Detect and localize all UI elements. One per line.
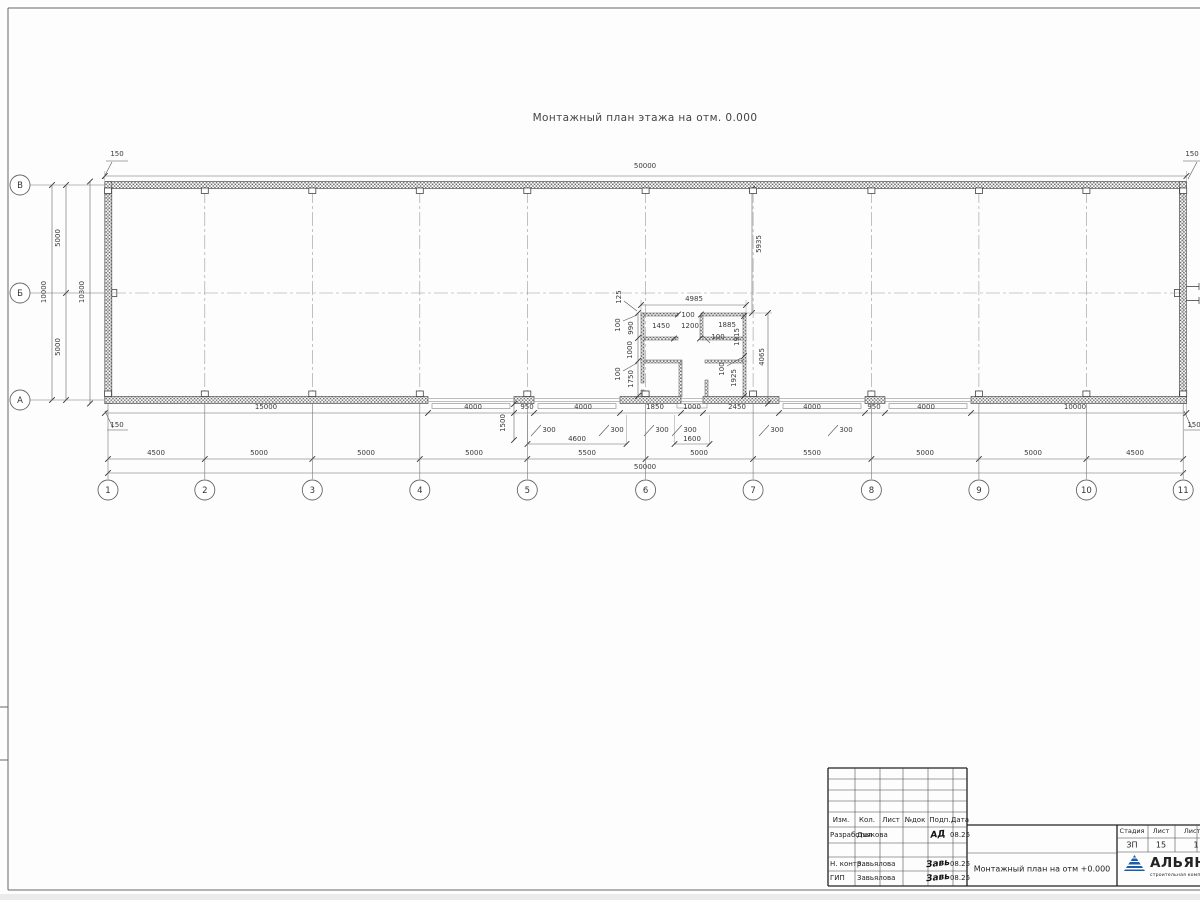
dim-label: 1600 <box>683 435 701 443</box>
dim-label: 5000 <box>357 449 375 457</box>
dim-label: 150 <box>110 421 123 429</box>
tb-name-ncontrol: Завьялова <box>857 860 895 868</box>
dim-label: 4600 <box>568 435 586 443</box>
dim-label: 1200 <box>681 322 699 330</box>
tb-stage-label: Стадия <box>1120 827 1145 835</box>
dim-label: 5000 <box>465 449 483 457</box>
grid-axis-label: 3 <box>310 486 315 496</box>
drawing-sheet: 1505000015010000500050001030059351254985… <box>0 0 1200 900</box>
dim-label: 100 <box>614 367 622 380</box>
dim-label: 1885 <box>718 321 736 329</box>
dim-label: 1500 <box>499 414 507 432</box>
generated-annotations: 1505000015010000500050001030059351254985… <box>10 150 1200 500</box>
dim-label: 50000 <box>634 463 656 471</box>
dim-label: 4000 <box>574 403 592 411</box>
tb-date-gip: 08.25 <box>950 874 970 882</box>
right-wall-door <box>1186 283 1199 304</box>
tb-signature-developer: АД <box>930 829 946 841</box>
tb-sheets-value: 1 <box>1193 841 1198 850</box>
dim-label: 150 <box>1187 421 1200 429</box>
dim-label: 125 <box>615 290 623 303</box>
dim-label: 4500 <box>147 449 165 457</box>
dim-label: 1915 <box>733 328 741 346</box>
tb-sheet-value: 15 <box>1156 841 1166 850</box>
dim-label: 15000 <box>255 403 277 411</box>
dim-label: 5500 <box>578 449 596 457</box>
tb-col-podp: Подп. <box>929 816 950 824</box>
dim-label: 4985 <box>685 295 703 303</box>
grid-axis-label: 11 <box>1178 486 1189 496</box>
floor-plan: 1505000015010000500050001030059351254985… <box>0 0 1200 900</box>
dim-label: 990 <box>627 321 635 334</box>
grid-axis-label: 1 <box>105 486 110 496</box>
tb-document-title: Монтажный план на отм +0.000 <box>974 865 1111 874</box>
dim-label: 2450 <box>728 403 746 411</box>
dim-label: 1000 <box>626 341 634 359</box>
tb-col-kol: Кол. <box>859 816 875 824</box>
grid-axis-label: А <box>17 396 23 406</box>
dim-label: 100 <box>681 311 694 319</box>
page-edge <box>0 894 1200 900</box>
openings <box>428 283 1199 409</box>
tb-col-data: Дата <box>951 816 969 824</box>
dim-label: 100 <box>718 362 726 375</box>
dim-label: 300 <box>770 426 783 434</box>
dim-label: 300 <box>839 426 852 434</box>
dim-label: 1450 <box>652 322 670 330</box>
tb-col-list: Лист <box>882 816 900 824</box>
dim-label: 1750 <box>627 370 635 388</box>
company-logo-name: АЛЬЯНС <box>1150 855 1200 871</box>
dim-label: 4000 <box>803 403 821 411</box>
grid-axis-label: В <box>17 181 23 191</box>
dim-label: 1925 <box>730 369 738 387</box>
dim-label: 10300 <box>78 281 86 303</box>
tb-sheets-label: Листов <box>1184 827 1200 835</box>
dim-label: 5000 <box>54 229 62 247</box>
dim-label: 300 <box>542 426 555 434</box>
tb-sheet-label: Лист <box>1153 827 1169 835</box>
dim-label: 100 <box>711 333 724 341</box>
dim-label: 5000 <box>54 338 62 356</box>
dim-label: 5500 <box>803 449 821 457</box>
dim-label: 5935 <box>755 235 763 253</box>
dim-label: 10000 <box>40 281 48 303</box>
dim-label: 50000 <box>634 162 656 170</box>
dim-label: 4500 <box>1126 449 1144 457</box>
tb-col-izm: Изм. <box>833 816 849 824</box>
grid-axis-label: 7 <box>750 486 755 496</box>
dim-label: 950 <box>867 403 880 411</box>
dim-label: 5000 <box>1024 449 1042 457</box>
dim-label: 4065 <box>758 348 766 366</box>
grid-axis-label: 6 <box>643 486 648 496</box>
dim-label: 5000 <box>916 449 934 457</box>
company-logo-subtitle: строительная компания <box>1150 873 1200 878</box>
tb-date-developer: 08.25 <box>950 831 970 839</box>
dim-label: 1850 <box>646 403 664 411</box>
tb-col-ndok: №док <box>905 816 926 824</box>
sheet-frame <box>0 8 1200 890</box>
tb-stage-value: ЗП <box>1126 841 1137 850</box>
grid-axis-label: Б <box>17 289 23 299</box>
dim-label: 150 <box>1185 150 1198 158</box>
dimension-lines <box>49 161 1200 476</box>
grid-axis-label: 4 <box>417 486 422 496</box>
tb-name-gip: Завьялова <box>857 874 895 882</box>
dim-label: 1000 <box>683 403 701 411</box>
dim-label: 4000 <box>464 403 482 411</box>
grid-axis-label: 5 <box>525 486 530 496</box>
dim-label: 10000 <box>1064 403 1086 411</box>
grid-axis-label: 2 <box>202 486 207 496</box>
dim-label: 300 <box>610 426 623 434</box>
tb-date-ncontrol: 08.25 <box>950 860 970 868</box>
dim-label: 300 <box>683 426 696 434</box>
grid-axis-label: 8 <box>869 486 874 496</box>
dim-label: 100 <box>614 318 622 331</box>
grid-axis-label: 9 <box>976 486 981 496</box>
grid-axis-label: 10 <box>1081 486 1092 496</box>
dim-label: 5000 <box>250 449 268 457</box>
dim-label: 4000 <box>917 403 935 411</box>
tb-role-gip: ГИП <box>830 874 845 882</box>
tb-name-developer: Дьякова <box>857 831 888 839</box>
dim-label: 5000 <box>690 449 708 457</box>
dim-label: 150 <box>110 150 123 158</box>
drawing-title: Монтажный план этажа на отм. 0.000 <box>533 112 758 124</box>
dim-label: 300 <box>655 426 668 434</box>
